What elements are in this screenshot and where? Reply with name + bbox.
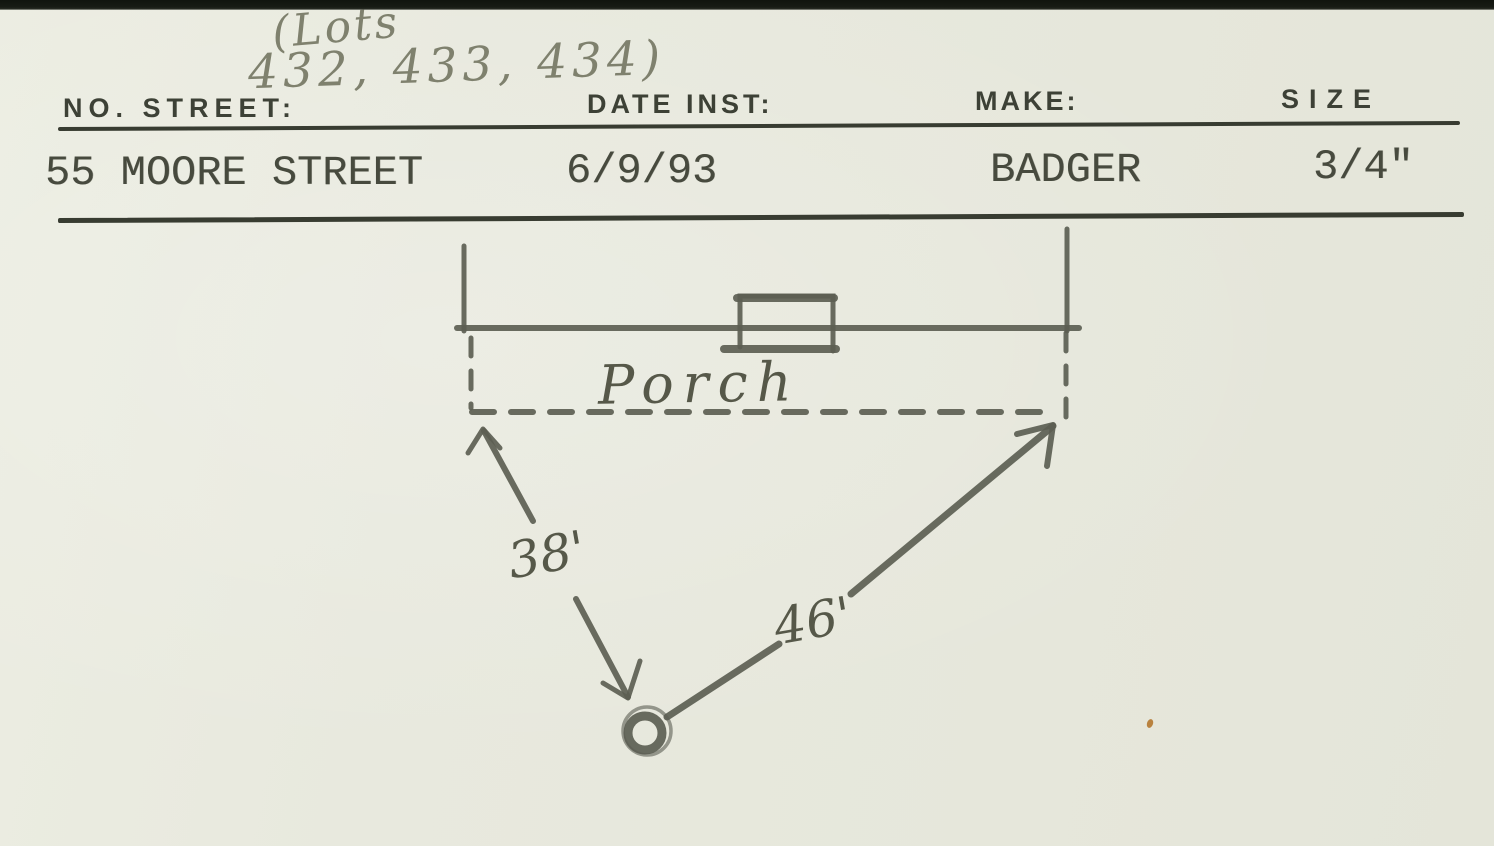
arrow-38-upper — [484, 431, 533, 521]
porch-label: Porch — [597, 350, 801, 417]
porch-sketch — [0, 0, 1494, 846]
meter-location-circle — [628, 716, 662, 750]
arrow-46-segment1 — [667, 644, 779, 717]
meter-record-card: (Lots 432, 433, 434) NO. STREET: DATE IN… — [0, 0, 1494, 846]
steps-box — [740, 296, 833, 351]
arrow-46-segment2 — [851, 426, 1053, 594]
